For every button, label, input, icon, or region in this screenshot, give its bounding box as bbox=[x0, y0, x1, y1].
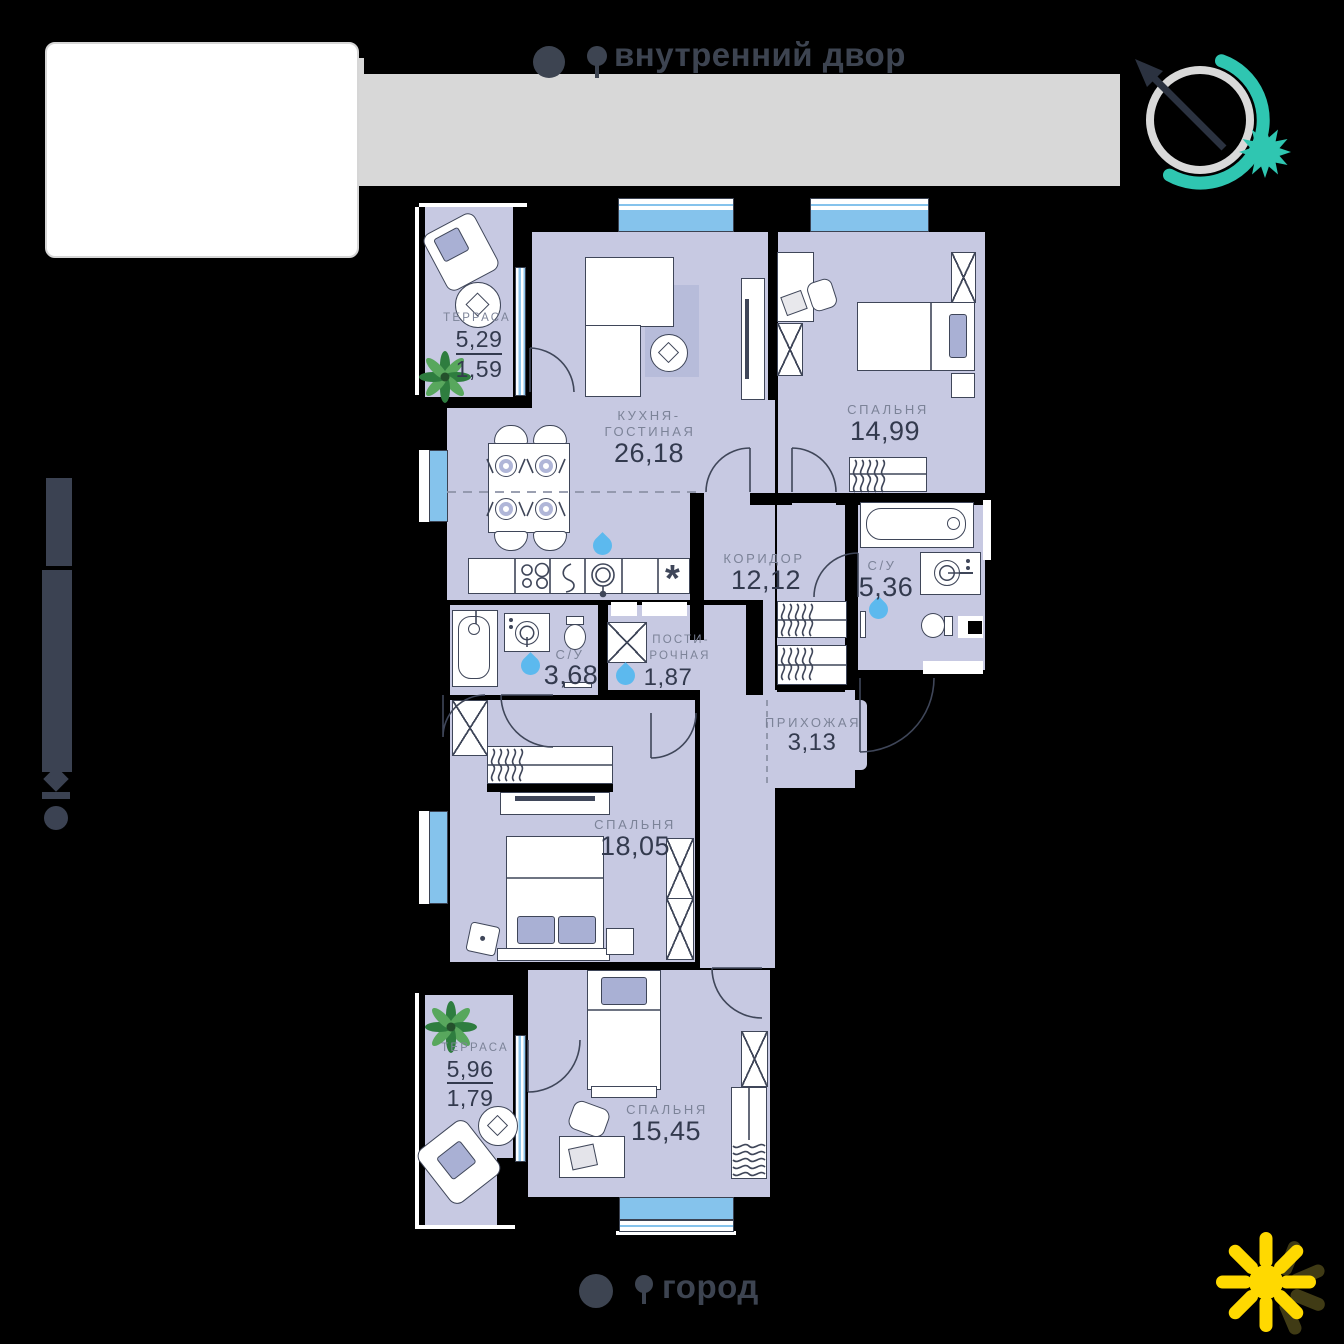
area-divider bbox=[456, 353, 502, 355]
room-area: 1,87 bbox=[644, 664, 693, 692]
room-label: ТЕРРАСА bbox=[441, 1042, 509, 1054]
city-label: город bbox=[662, 1268, 759, 1306]
room-label: С/У bbox=[867, 558, 896, 573]
room-area: 18,05 bbox=[600, 831, 670, 862]
room-label: РОЧНАЯ bbox=[649, 650, 710, 662]
room-area: 5,29 bbox=[456, 326, 503, 353]
floorplan-page: внутренний двор bbox=[0, 0, 1344, 1344]
room-area: 1,59 bbox=[456, 356, 503, 383]
room-area: 5,36 bbox=[859, 572, 914, 603]
room-label: КУХНЯ- bbox=[617, 408, 680, 423]
room-label: СПАЛЬНЯ bbox=[594, 817, 676, 832]
room-label: КОРИДОР bbox=[723, 551, 804, 566]
room-label: ТЕРРАСА bbox=[443, 312, 511, 324]
room-label: СПАЛЬНЯ bbox=[626, 1102, 708, 1117]
room-label: СПАЛЬНЯ bbox=[847, 402, 929, 417]
tree-icon bbox=[635, 1275, 653, 1293]
city-icons bbox=[556, 1270, 676, 1314]
sun-icon bbox=[579, 1274, 613, 1308]
room-area: 5,96 bbox=[447, 1056, 494, 1083]
room-area: 15,45 bbox=[631, 1116, 701, 1147]
room-area: 12,12 bbox=[731, 565, 801, 596]
room-label: ПРИХОЖАЯ bbox=[765, 715, 861, 730]
room-area: 26,18 bbox=[614, 438, 684, 469]
room-area: 1,79 bbox=[447, 1085, 494, 1112]
room-area: 3,13 bbox=[788, 729, 837, 757]
area-divider bbox=[447, 1082, 493, 1084]
room-area: 14,99 bbox=[850, 416, 920, 447]
room-area: 3,68 bbox=[544, 660, 599, 691]
room-label: ПОСТИ- bbox=[652, 634, 709, 646]
room-label: ГОСТИНАЯ bbox=[605, 424, 696, 439]
sun-badge bbox=[1200, 1222, 1344, 1344]
